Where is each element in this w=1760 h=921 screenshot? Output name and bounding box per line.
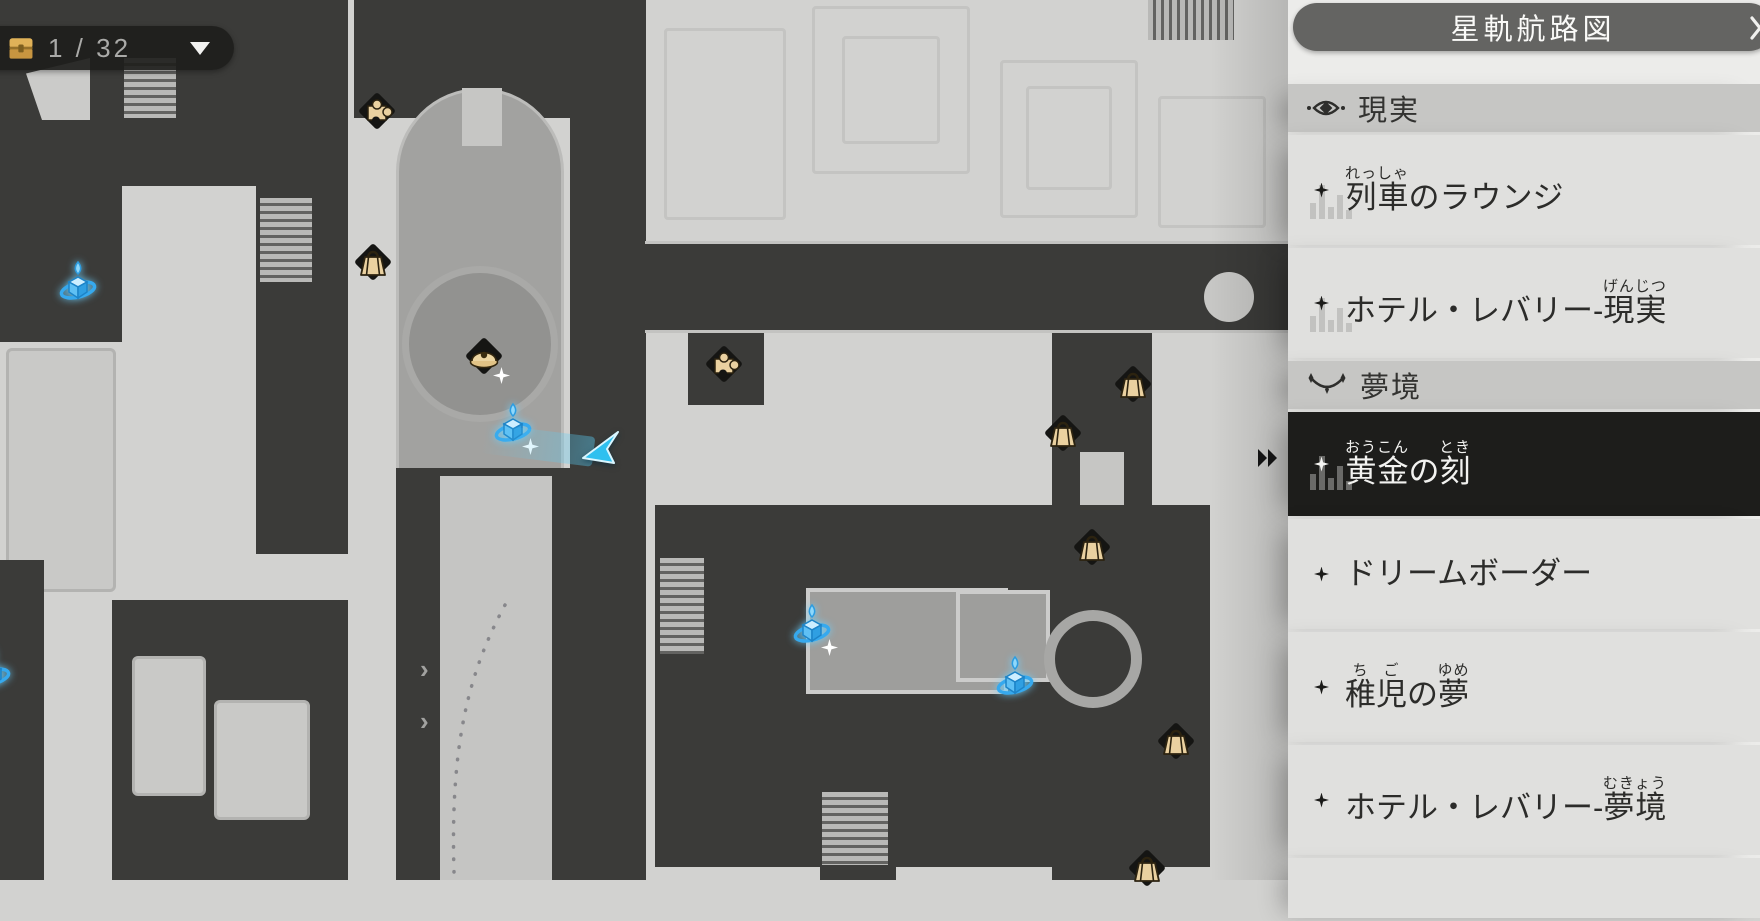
map-shape [570,0,646,880]
map-shape [402,266,558,422]
map-shape [1026,86,1112,190]
area-item-train-lounge[interactable]: 列車れっしゃのラウンジ [1288,135,1760,245]
map-shape [645,241,1288,333]
map-title-bar[interactable]: 星軌航路図 [1293,3,1760,51]
area-item-childhood-dream[interactable]: 稚児ちごの夢ゆめ [1288,632,1760,742]
map-shape [688,333,764,405]
chevron-right-icon[interactable] [1749,15,1760,46]
street-arrow-icon: › [420,708,429,734]
path-dotted-line [430,590,570,880]
map-shape [6,348,116,592]
section-header-dreamscape: 夢境 [1288,361,1760,409]
area-item-label: ホテル・レバリー-夢境むきょう [1345,775,1667,826]
dream-icon [1306,372,1348,398]
area-item-label: ドリームボーダー [1345,556,1592,592]
area-item-hotel-reverie-reality[interactable]: ホテル・レバリー-現実げんじつ [1288,248,1760,358]
sparkle-icon [1314,567,1329,582]
map-shape [956,590,1050,682]
area-item-label: 稚児ちごの夢ゆめ [1345,662,1470,713]
selected-indicator-icon [1254,444,1284,477]
section-header-reality: 現実 [1288,84,1760,132]
eye-icon [1306,95,1346,121]
map-shape [214,700,310,820]
map-shape [820,865,896,880]
map-shape [842,36,940,144]
counter-value: 1 / 32 [48,33,131,64]
map-shape [462,88,502,146]
map-shape [260,198,312,282]
map-shape [132,656,206,796]
area-item-label: ホテル・レバリー-現実げんじつ [1345,278,1667,329]
map-shape [1044,610,1142,708]
area-item-dream-border[interactable]: ドリームボーダー [1288,519,1760,629]
map-shape [660,558,704,654]
dropdown-arrow-icon[interactable] [190,42,210,55]
map-shape [822,792,888,868]
area-item-label: 列車れっしゃのラウンジ [1345,165,1564,216]
map-title: 星軌航路図 [1450,6,1615,48]
area-item-golden-hour[interactable]: 黄金おうこんの刻とき [1288,412,1760,516]
area-item-hotel-reverie-dream[interactable]: ホテル・レバリー-夢境むきょう [1288,745,1760,855]
chest-icon [6,33,36,63]
map-shape [664,28,786,220]
area-item-label: 黄金おうこんの刻とき [1345,439,1471,490]
street-arrow-icon: › [499,207,525,216]
area-list: 現実 列車れっしゃのラウンジ ホテル・レバリー-現実げんじつ 夢境 黄金おうこん [1288,84,1760,921]
area-item-partial [1288,858,1760,918]
map-shape [1210,0,1288,880]
sparkle-icon [1314,793,1329,808]
section-label: 夢境 [1360,364,1422,406]
collectible-counter[interactable]: 1 / 32 [0,26,234,70]
sparkle-icon [1314,680,1329,695]
map-shape [0,560,44,880]
section-label: 現実 [1358,87,1420,129]
map-sidebar: 星軌航路図 現実 列車れっしゃのラウンジ ホテル・レバリー-現実げんじつ [1288,0,1760,880]
street-arrow-icon: › [420,656,429,682]
map-shape [0,186,122,342]
